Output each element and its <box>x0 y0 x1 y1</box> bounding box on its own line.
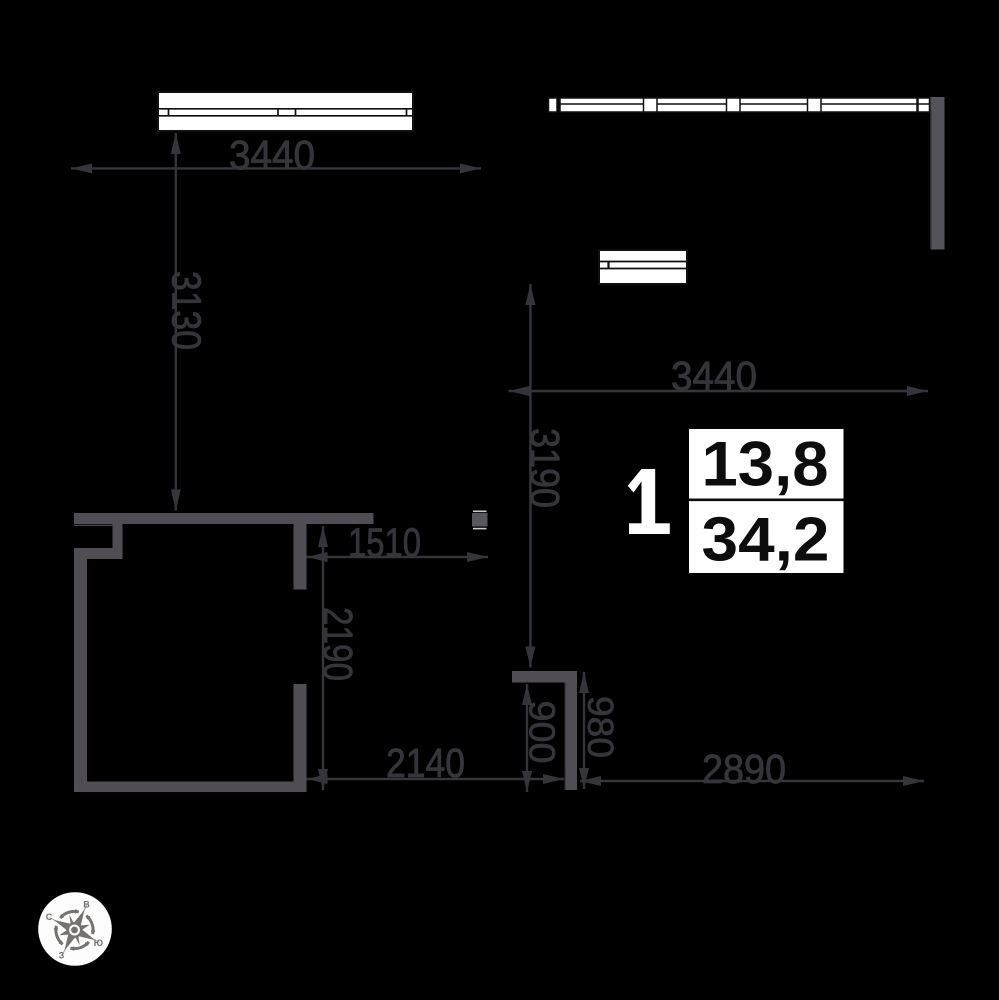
svg-text:900: 900 <box>522 701 563 764</box>
svg-text:3440: 3440 <box>229 132 315 178</box>
svg-text:З: З <box>59 951 65 961</box>
svg-text:13,8: 13,8 <box>702 430 829 500</box>
svg-text:2140: 2140 <box>386 740 465 786</box>
svg-text:2190: 2190 <box>315 607 361 681</box>
svg-text:3130: 3130 <box>164 271 210 350</box>
svg-text:Ю: Ю <box>94 938 103 948</box>
svg-text:С: С <box>46 912 53 922</box>
svg-text:980: 980 <box>580 696 621 758</box>
svg-text:В: В <box>83 900 90 910</box>
svg-text:34,2: 34,2 <box>702 505 830 575</box>
svg-text:2890: 2890 <box>702 746 786 792</box>
svg-text:1510: 1510 <box>348 520 421 566</box>
svg-text:3440: 3440 <box>671 353 757 399</box>
svg-text:3190: 3190 <box>522 428 568 508</box>
